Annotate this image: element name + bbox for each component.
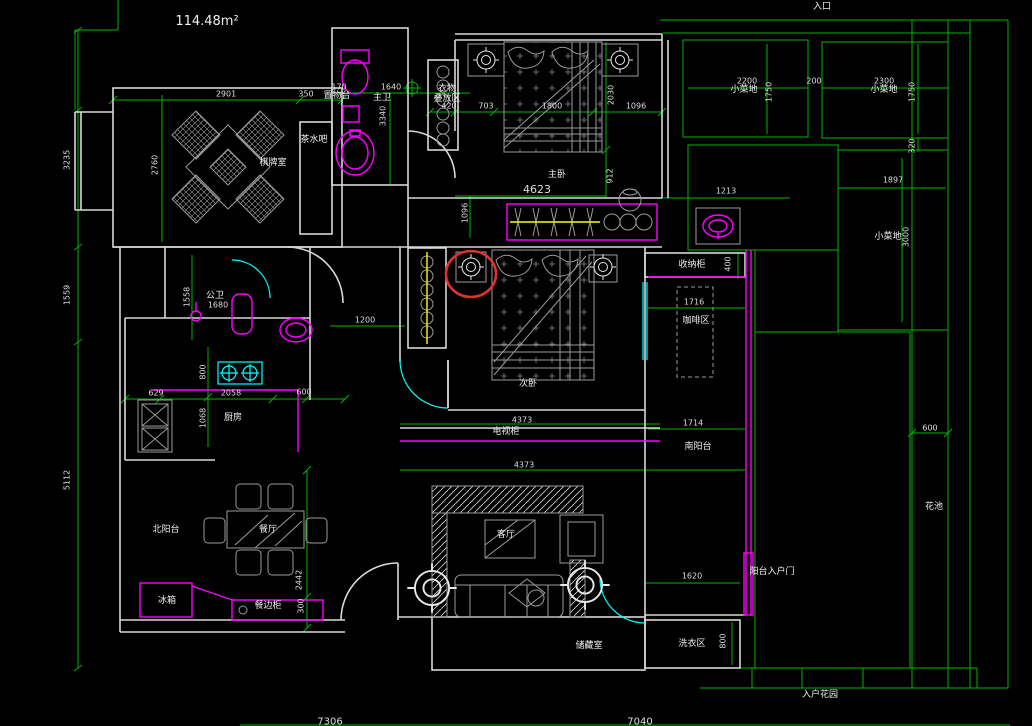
room-label: 咖啡区: [682, 317, 709, 327]
dimension-label: 2030: [608, 85, 617, 105]
dimension-label: 7306: [317, 717, 342, 726]
room-label: 小菜地: [874, 233, 901, 243]
dimension-label: 2442: [296, 570, 305, 590]
room-label: 入口: [813, 3, 831, 13]
dimension-label: 1680: [208, 302, 228, 311]
dimension-label: 1897: [883, 177, 903, 186]
room-label: 北阳台: [152, 526, 179, 536]
dimension-label: 1068: [200, 408, 209, 428]
dimension-label: 1558: [184, 287, 193, 307]
room-label: 小菜地: [730, 86, 757, 96]
dimension-label: 2200: [737, 78, 757, 87]
dimension-label: 1800: [542, 103, 562, 112]
room-label: 收纳柜: [678, 261, 705, 271]
room-label: 冰箱: [158, 597, 176, 607]
dimension-label: 320: [909, 138, 918, 153]
dimension-label: 5112: [64, 470, 73, 490]
dimension-label: 600: [922, 425, 937, 434]
dimension-label: 600: [296, 389, 311, 398]
room-label: 棋牌室: [259, 159, 286, 169]
room-label: 客厅: [497, 531, 515, 541]
dimension-label: 1640: [381, 84, 401, 93]
dimension-label: 4623: [523, 184, 551, 196]
dimension-label: 7040: [627, 717, 652, 726]
dimension-label: 1213: [716, 188, 736, 197]
room-label: 主卫: [373, 94, 391, 104]
dimension-label: 1716: [684, 299, 704, 308]
dimension-label: 1200: [355, 317, 375, 326]
room-label: 入户花园: [802, 691, 838, 701]
dimension-label: 1620: [682, 573, 702, 582]
dimension-label: 2058: [221, 390, 241, 399]
room-label: 储藏室: [575, 642, 602, 652]
dimension-label: 420: [441, 103, 456, 112]
room-label: 小菜地: [870, 86, 897, 96]
room-label: 阳台入户门: [749, 568, 794, 578]
dimension-label: 1714: [683, 420, 703, 429]
dimension-label: 800: [720, 633, 729, 648]
dimension-label: 3340: [380, 106, 389, 126]
room-label: 洗衣区: [678, 640, 705, 650]
dimension-label: 629: [148, 390, 163, 399]
room-label: 餐厅: [259, 526, 277, 536]
dimension-label: 4373: [514, 462, 534, 471]
dimension-label: 3000: [903, 227, 912, 247]
dimension-label: 1750: [909, 82, 918, 102]
dimension-label: 2901: [216, 91, 236, 100]
dimension-label: 703: [478, 103, 493, 112]
dimension-label: 2300: [874, 78, 894, 87]
room-label: 置物台: [323, 92, 350, 102]
room-label: 餐边柜: [254, 602, 281, 612]
dimension-label: 4373: [512, 417, 532, 426]
cad-viewport[interactable]: 114.48m²入口棋牌室茶水吧置物台主卫衣物 叠放区主卧次卧小菜地小菜地小菜地…: [0, 0, 1032, 726]
dimension-label: 912: [607, 168, 616, 183]
room-label: 114.48m²: [175, 15, 238, 29]
room-label: 南阳台: [684, 443, 711, 453]
room-label: 主卧: [548, 171, 566, 181]
dimension-label: 1096: [462, 203, 471, 223]
dimension-label: 170: [331, 84, 346, 93]
room-label: 衣物 叠放区: [433, 85, 460, 105]
label-layer: 114.48m²入口棋牌室茶水吧置物台主卫衣物 叠放区主卧次卧小菜地小菜地小菜地…: [0, 0, 1032, 726]
dimension-label: 800: [200, 364, 209, 379]
dimension-label: 300: [298, 598, 307, 613]
dimension-label: 3235: [64, 150, 73, 170]
room-label: 茶水吧: [300, 136, 327, 146]
dimension-label: 400: [725, 256, 734, 271]
room-label: 次卧: [519, 380, 537, 390]
dimension-label: 1750: [766, 82, 775, 102]
room-label: 花池: [925, 503, 943, 513]
dimension-label: 2760: [152, 155, 161, 175]
dimension-label: 200: [806, 78, 821, 87]
dimension-label: 1096: [626, 103, 646, 112]
room-label: 公卫: [206, 292, 224, 302]
dimension-label: 350: [298, 91, 313, 100]
room-label: 电视柜: [492, 428, 519, 438]
dimension-label: 1559: [64, 285, 73, 305]
room-label: 厨房: [224, 414, 242, 424]
